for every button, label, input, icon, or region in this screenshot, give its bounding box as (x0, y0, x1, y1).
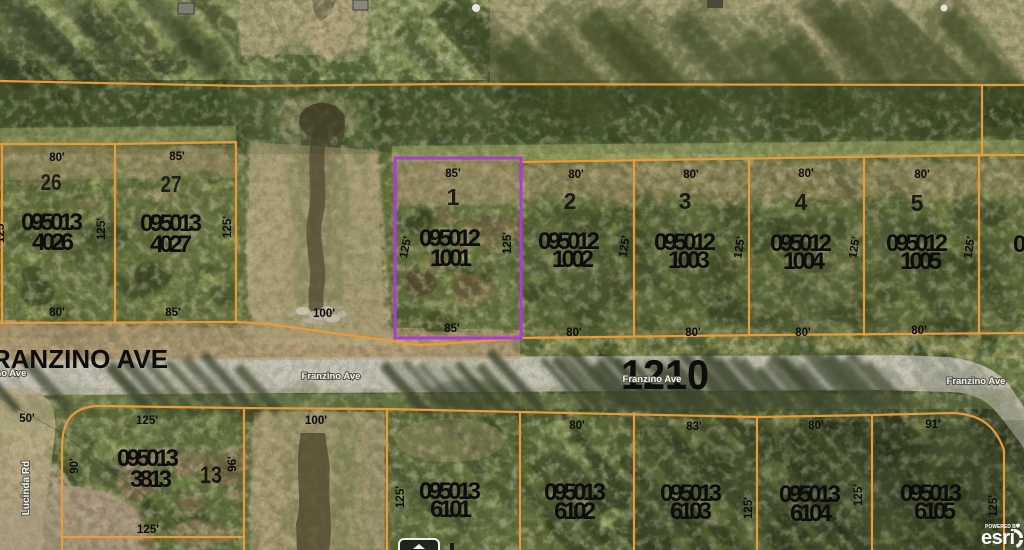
svg-text:85': 85' (169, 151, 185, 163)
svg-text:esri: esri (981, 527, 1015, 549)
svg-text:80': 80' (808, 420, 824, 432)
svg-text:125': 125' (136, 415, 158, 427)
svg-text:91': 91' (925, 419, 941, 431)
svg-text:4027: 4027 (150, 231, 192, 258)
svg-text:6103: 6103 (670, 498, 712, 525)
svg-text:095: 095 (1013, 231, 1024, 258)
svg-text:80': 80' (568, 169, 584, 181)
svg-text:50': 50' (19, 413, 35, 425)
svg-text:85': 85' (445, 168, 461, 180)
svg-text:96': 96' (227, 456, 239, 472)
svg-text:125': 125' (222, 216, 234, 238)
svg-text:125': 125' (743, 497, 755, 519)
svg-text:100': 100' (313, 308, 335, 320)
svg-text:125': 125' (0, 221, 7, 243)
svg-text:80': 80' (685, 327, 701, 339)
svg-text:1001: 1001 (430, 245, 472, 272)
svg-text:1002: 1002 (552, 246, 594, 273)
svg-text:zino Ave: zino Ave (0, 368, 26, 379)
svg-text:6104: 6104 (790, 500, 833, 527)
svg-text:85': 85' (165, 307, 181, 319)
svg-text:1003: 1003 (668, 247, 710, 274)
svg-text:4026: 4026 (32, 229, 74, 256)
svg-text:3813: 3813 (130, 466, 172, 493)
svg-text:125': 125' (988, 495, 1000, 517)
svg-text:1: 1 (447, 184, 460, 210)
svg-text:1004: 1004 (783, 248, 826, 275)
svg-text:80': 80' (49, 152, 65, 164)
svg-text:3: 3 (679, 188, 692, 214)
svg-text:80': 80' (49, 307, 65, 319)
svg-text:80': 80' (569, 420, 585, 432)
svg-text:2: 2 (564, 188, 577, 214)
svg-text:125': 125' (137, 524, 159, 536)
svg-text:80': 80' (798, 168, 814, 180)
svg-text:6105: 6105 (914, 498, 956, 525)
svg-text:90': 90' (69, 458, 81, 474)
svg-text:4: 4 (795, 189, 808, 215)
svg-text:125': 125' (853, 484, 865, 506)
svg-text:Franzino Ave: Franzino Ave (947, 376, 1006, 387)
svg-text:1005: 1005 (900, 248, 942, 275)
svg-text:85': 85' (444, 323, 460, 335)
svg-text:5: 5 (911, 190, 924, 216)
svg-text:100': 100' (305, 415, 327, 427)
svg-text:125': 125' (395, 486, 407, 508)
svg-text:125': 125' (96, 218, 108, 240)
svg-text:6101: 6101 (430, 496, 472, 523)
svg-text:80': 80' (914, 169, 930, 181)
svg-text:80': 80' (911, 325, 927, 337)
svg-text:6102: 6102 (554, 498, 596, 525)
svg-text:80': 80' (683, 169, 699, 181)
svg-text:13: 13 (200, 462, 222, 489)
svg-text:Franzino Ave: Franzino Ave (623, 374, 682, 385)
svg-text:27: 27 (161, 171, 182, 197)
svg-text:125': 125' (502, 232, 514, 254)
svg-text:Franzino Ave: Franzino Ave (302, 371, 361, 382)
svg-text:80': 80' (566, 327, 582, 339)
svg-text:80': 80' (795, 327, 811, 339)
svg-text:26: 26 (41, 169, 62, 195)
svg-text:83': 83' (686, 421, 702, 433)
svg-text:Lucinda Rd: Lucinda Rd (21, 461, 32, 515)
